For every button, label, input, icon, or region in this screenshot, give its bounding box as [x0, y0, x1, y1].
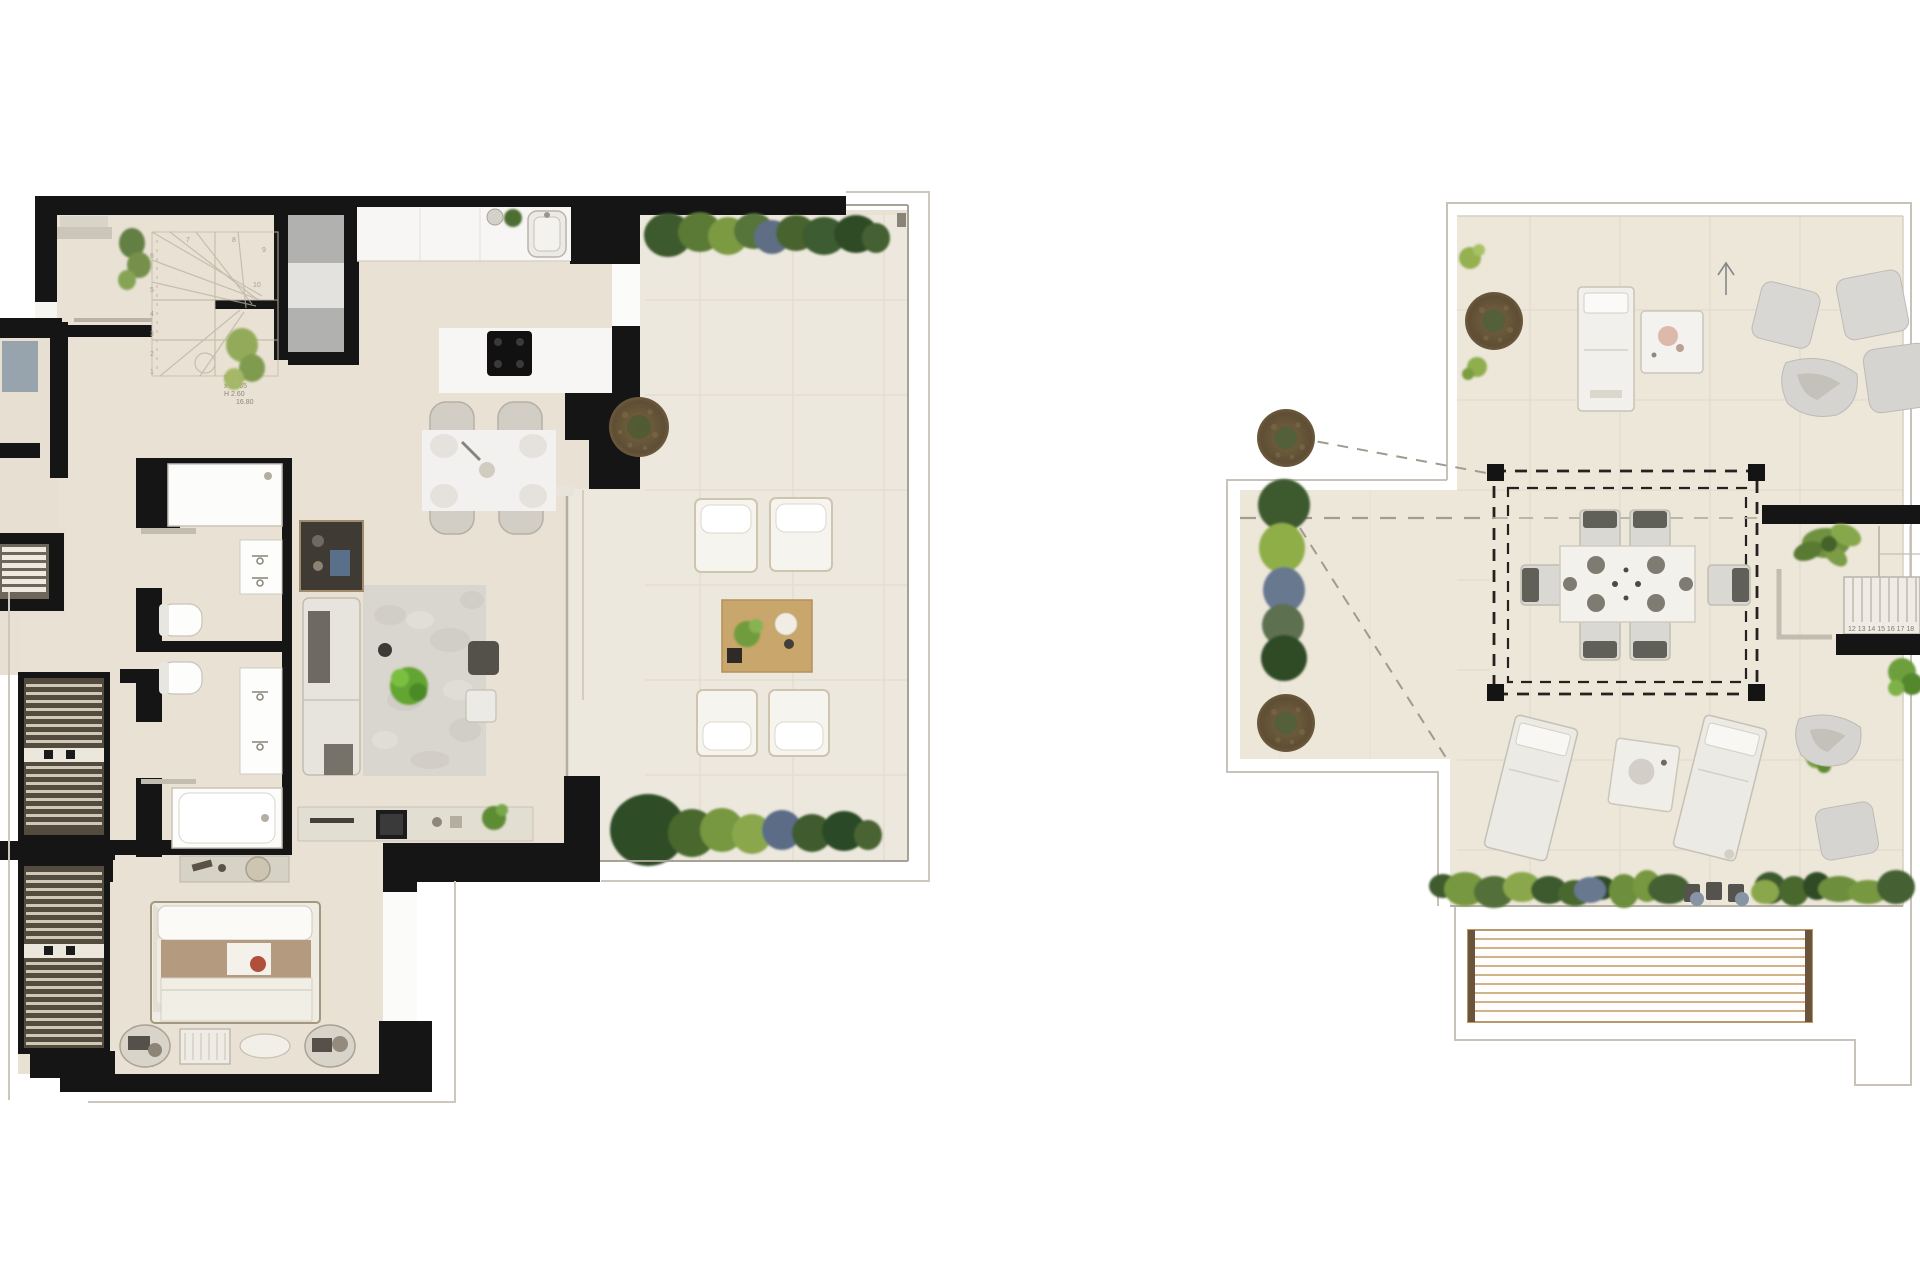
svg-text:1: 1	[150, 369, 154, 376]
svg-text:12 13 14 15 16 17 18: 12 13 14 15 16 17 18	[1848, 626, 1914, 633]
svg-text:4: 4	[150, 311, 154, 318]
svg-text:3: 3	[150, 331, 154, 338]
svg-text:7: 7	[186, 237, 190, 244]
svg-text:H 2.60: H 2.60	[224, 391, 245, 398]
svg-text:16.80: 16.80	[236, 399, 254, 406]
svg-text:6: 6	[150, 253, 154, 260]
svg-text:10: 10	[253, 282, 261, 289]
svg-text:2: 2	[150, 351, 154, 358]
svg-text:9: 9	[262, 247, 266, 254]
svg-text:8: 8	[232, 237, 236, 244]
svg-text:5: 5	[150, 287, 154, 294]
